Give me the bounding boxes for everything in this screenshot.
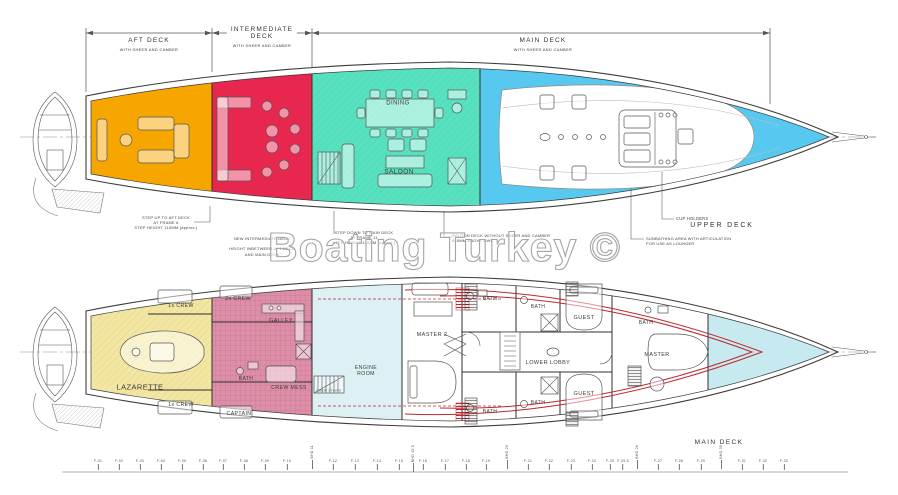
dim-aft-title: AFT DECK xyxy=(124,37,174,44)
dim-main-sub: WITH SHEER AND CAMBER xyxy=(514,48,572,52)
dim-main-title: MAIN DECK xyxy=(516,37,571,44)
dim-aft-sub: WITH SHEER AND CAMBER xyxy=(120,48,178,52)
dimension-main-deck: MAIN DECK WITH SHEER AND CAMBER xyxy=(514,29,572,52)
main-deck-title: MAIN DECK xyxy=(695,439,744,446)
watermark: Boating Turkey © xyxy=(268,224,621,271)
upper-hull-plan xyxy=(33,60,876,216)
yacht-deck-plan-canvas: AFT DECK WITH SHEER AND CAMBER INTERMEDI… xyxy=(0,0,898,495)
note-sunbathing-area: SUNBATHING AREA WITH ARTICULATION FOR US… xyxy=(646,236,731,246)
upper-deck-title: UPPER DECK xyxy=(690,222,754,229)
note-cup-holders: CUP HOLDERS xyxy=(676,216,708,221)
dim-intermediate-title: INTERMEDIATE DECK xyxy=(227,26,297,40)
lower-hull-plan xyxy=(33,275,876,431)
dimension-aft-deck: AFT DECK WITH SHEER AND CAMBER xyxy=(120,29,178,52)
dim-intermediate-sub: WITH SHEER AND CAMBER xyxy=(227,44,297,48)
dimension-intermediate-deck: INTERMEDIATE DECK WITH SHEER AND CAMBER xyxy=(227,25,297,48)
note-step-up-aft-deck: STEP UP TO AFT DECK AT FRAME 6 STEP HEIG… xyxy=(120,215,212,231)
